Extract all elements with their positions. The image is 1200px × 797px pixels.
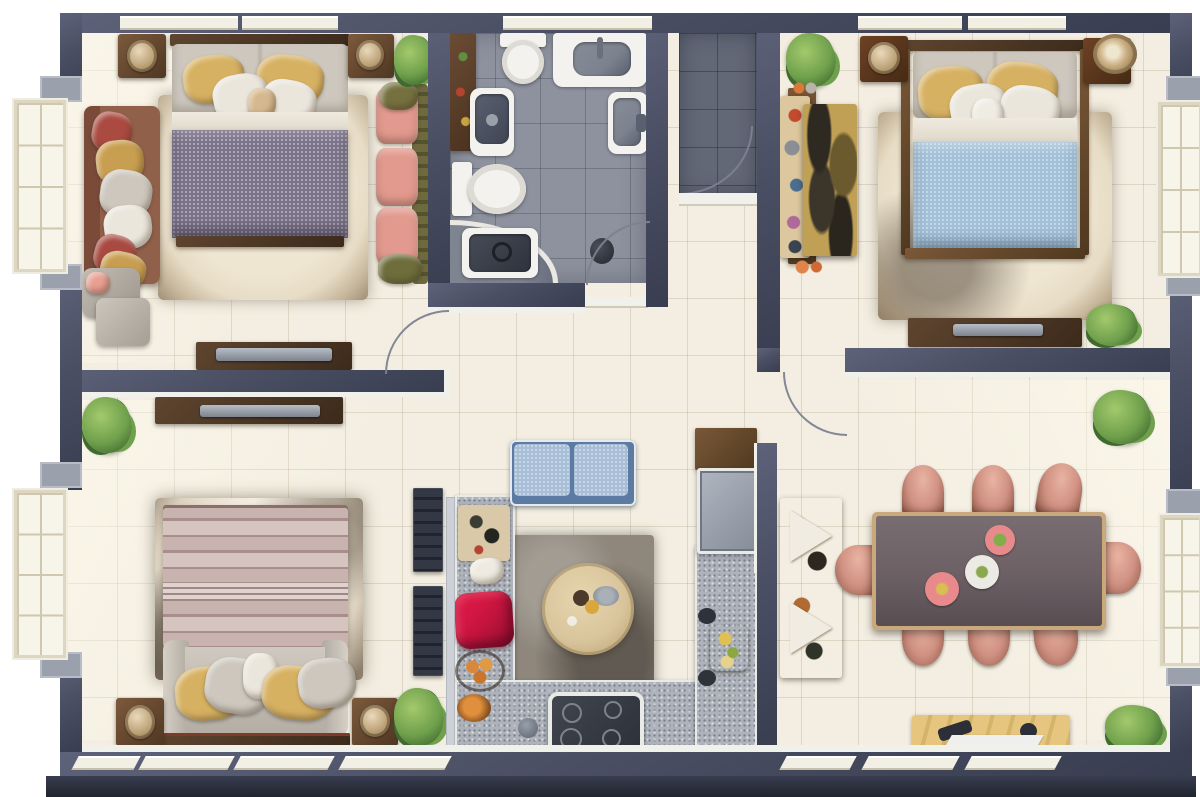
chaise-pillow-green xyxy=(378,254,422,284)
burner-icon xyxy=(562,703,582,723)
wall-entry-right xyxy=(757,13,780,372)
red-cushion xyxy=(453,590,515,650)
cutting-board xyxy=(458,505,510,561)
decor-bowl xyxy=(868,42,900,74)
plate-white xyxy=(965,555,999,589)
bed-foot-rail xyxy=(176,236,344,247)
bathtub xyxy=(553,33,647,87)
room-bedroom-top-left xyxy=(82,33,428,370)
window xyxy=(71,756,140,770)
cabinet-triangle-decor xyxy=(790,602,832,654)
window xyxy=(338,756,451,770)
wall-kitchen-dining xyxy=(757,443,777,752)
wall-basin xyxy=(608,92,648,154)
table-cup xyxy=(567,616,577,626)
window-sill-block xyxy=(40,76,82,102)
tv-icon xyxy=(953,324,1043,336)
fruit-dish xyxy=(457,694,491,722)
wall-trim xyxy=(60,392,450,397)
bathtub-faucet-icon xyxy=(597,37,603,59)
bench-sofa-blue xyxy=(510,440,636,506)
bed-foot-rail xyxy=(905,248,1085,259)
window xyxy=(120,16,238,30)
toilet-left-bowl xyxy=(468,164,526,214)
shower-faucet-icon xyxy=(492,242,512,262)
bench-cushion xyxy=(574,444,628,496)
wall-shelf xyxy=(413,586,443,676)
bed-duvet-blue xyxy=(913,142,1077,250)
window-sill-block xyxy=(40,462,82,488)
wall-bathroom-left xyxy=(428,13,450,300)
room-bedroom-top-right xyxy=(780,33,1170,348)
window-sill-block xyxy=(1166,76,1200,102)
fruit-bowl xyxy=(455,650,505,692)
window-bay xyxy=(1158,102,1200,276)
window xyxy=(242,16,338,30)
display-cabinet xyxy=(780,498,842,678)
table-fruit-yellow xyxy=(585,600,599,614)
rattan-decor xyxy=(1093,34,1137,74)
window-bay xyxy=(1160,515,1200,666)
plant xyxy=(82,397,132,453)
dark-plate xyxy=(698,670,716,686)
wall-divider-right-a xyxy=(757,348,780,372)
wall-shelf xyxy=(413,488,443,572)
wall-divider-right-b xyxy=(845,348,1192,372)
bench-cushion xyxy=(514,444,570,496)
bed-headboard xyxy=(901,40,1089,51)
wall-bathroom-bottom xyxy=(428,283,585,307)
plant xyxy=(1086,304,1138,346)
plant xyxy=(394,688,444,746)
entry-threshold xyxy=(679,193,757,206)
glass-partition xyxy=(446,497,455,752)
plate-pink xyxy=(925,572,959,606)
window-bay xyxy=(14,490,66,658)
bed-duvet-purple xyxy=(172,130,348,238)
plate-pink xyxy=(985,525,1015,555)
window xyxy=(233,756,334,770)
window-sill-block xyxy=(1166,489,1200,515)
wall-bottom-face xyxy=(46,776,1196,797)
plant xyxy=(786,33,836,87)
window xyxy=(779,756,856,770)
bathroom-threshold xyxy=(585,297,648,308)
bed-duvet-striped xyxy=(163,505,348,647)
window xyxy=(858,16,962,30)
room-entry-hall xyxy=(679,33,757,195)
wall-right-b xyxy=(1170,272,1192,515)
tv-icon xyxy=(216,348,332,361)
window-bay xyxy=(14,100,66,272)
decor-bowl xyxy=(125,705,155,739)
fridge-counter-wood xyxy=(695,428,757,470)
shoes-decor xyxy=(790,81,820,95)
vanity-sink xyxy=(470,88,514,156)
toilet-top-bowl xyxy=(502,40,544,84)
window xyxy=(503,16,652,30)
floor-plan xyxy=(0,0,1200,797)
burner-icon xyxy=(604,701,622,719)
decor-bowl xyxy=(127,40,157,72)
dark-plate xyxy=(698,608,716,624)
wall-trim xyxy=(428,307,585,313)
window xyxy=(968,16,1066,30)
tv-icon xyxy=(200,405,320,417)
basin-faucet-icon xyxy=(636,114,646,132)
vanity-faucet-icon xyxy=(486,114,498,126)
chaise-cushion-pink xyxy=(376,148,418,206)
room-bedroom-bottom-left xyxy=(82,397,446,752)
dining-chair xyxy=(902,465,944,519)
bed-fold-band xyxy=(163,583,348,601)
window xyxy=(138,756,234,770)
dining-chair xyxy=(972,465,1014,519)
decor-bowl xyxy=(356,40,384,70)
counter-knob xyxy=(518,718,538,738)
wardrobe-board-camo xyxy=(803,104,857,256)
decor-bowl xyxy=(360,705,390,737)
wall-trim xyxy=(845,372,1192,377)
shower-basin xyxy=(462,228,538,278)
ottoman xyxy=(96,298,150,346)
baseline-trim xyxy=(82,745,1170,752)
shoes-decor xyxy=(792,259,826,275)
chaise-pillow-olive xyxy=(380,82,418,110)
wall-trim xyxy=(754,443,757,573)
window xyxy=(861,756,959,770)
side-tray xyxy=(710,625,748,671)
armchair-pillow-pink xyxy=(86,272,110,294)
window xyxy=(964,756,1061,770)
wall-left-b xyxy=(60,270,82,490)
cabinet-triangle-decor xyxy=(790,510,832,562)
room-kitchen xyxy=(455,428,757,752)
plant xyxy=(1093,390,1151,444)
